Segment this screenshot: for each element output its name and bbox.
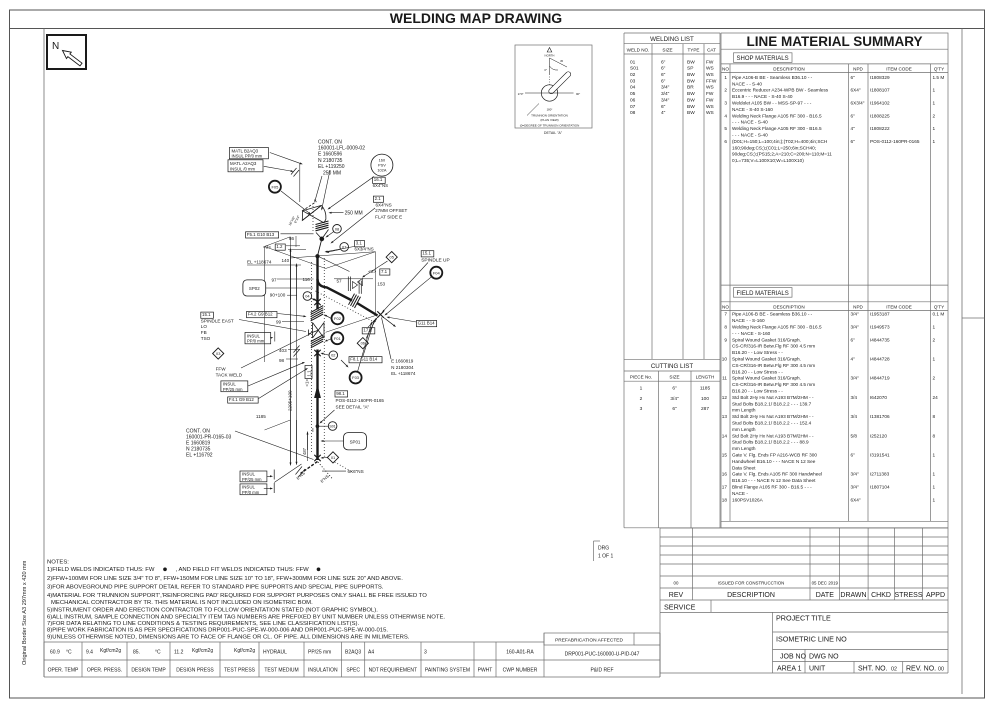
svg-text:8: 8 — [933, 433, 936, 438]
svg-text:160PSV1026A: 160PSV1026A — [732, 497, 764, 502]
svg-text:PIECE No.: PIECE No. — [630, 375, 652, 380]
svg-text:REV: REV — [669, 592, 684, 599]
svg-text:Stud Bolts B18.2.1/ B18.2.2 -: Stud Bolts B18.2.1/ B18.2.2 - - - 152.4 — [732, 421, 812, 426]
svg-text:Std Bolt 2Hy Hx Nut A193 B7M/2: Std Bolt 2Hy Hx Nut A193 B7M/2HM - - — [732, 395, 814, 400]
svg-text:1: 1 — [933, 497, 936, 502]
svg-text:11: 11 — [722, 376, 727, 381]
svg-text:100: 100 — [701, 396, 709, 402]
svg-text:TSO: TSO — [201, 336, 211, 341]
svg-text:NO: NO — [722, 304, 729, 309]
svg-text:SP01: SP01 — [350, 439, 361, 444]
svg-text:4": 4" — [661, 110, 666, 116]
svg-text:N 2180735: N 2180735 — [318, 158, 343, 164]
svg-text:, AND FIELD FIT WELDS INDICATE: , AND FIELD FIT WELDS INDICATED THUS: FF… — [176, 567, 310, 573]
svg-text:CS-CR/316-IR Betw.Flg RF 300 4: CS-CR/316-IR Betw.Flg RF 300 4.5 mm — [732, 344, 815, 349]
svg-text:97: 97 — [272, 277, 278, 282]
svg-text:3: 3 — [424, 650, 427, 656]
svg-text:1: 1 — [933, 453, 936, 458]
svg-text:APPD: APPD — [926, 592, 945, 599]
svg-text:12: 12 — [722, 395, 728, 400]
svg-text:Stud Bolts B18.2.1/ B18.2.2 -: Stud Bolts B18.2.1/ B18.2.2 - - - 88.9 — [732, 440, 809, 445]
svg-text:WELD NO.: WELD NO. — [627, 48, 650, 53]
svg-text:NACE - - S-160: NACE - - S-160 — [732, 318, 765, 323]
svg-text:I1807104: I1807104 — [870, 485, 890, 490]
svg-text:9.4: 9.4 — [86, 650, 93, 656]
svg-text:PP/25 mm: PP/25 mm — [242, 477, 262, 482]
svg-text:3/4": 3/4" — [851, 485, 860, 490]
svg-text:CAT: CAT — [707, 48, 716, 53]
svg-text:- - - NACE - S-160: - - - NACE - S-160 — [732, 331, 771, 336]
svg-text:NACE - S-40 S-160: NACE - S-40 S-160 — [732, 107, 773, 112]
svg-text:08: 08 — [335, 226, 339, 231]
svg-text:S01: S01 — [329, 425, 335, 429]
svg-text:BW: BW — [687, 110, 695, 116]
svg-text:PP/0 mm: PP/0 mm — [242, 490, 260, 495]
svg-text:SPINDLE EAST: SPINDLE EAST — [201, 318, 234, 323]
svg-text:3/4": 3/4" — [851, 325, 860, 330]
svg-text:Spiral Wound Gasket 316/Graph.: Spiral Wound Gasket 316/Graph. — [732, 357, 801, 362]
svg-text:487: 487 — [302, 447, 307, 455]
svg-text:DATE: DATE — [816, 592, 834, 599]
svg-text:270°: 270° — [518, 92, 524, 96]
svg-text:INSULATION: INSULATION — [308, 668, 338, 674]
svg-text:I1808107: I1808107 — [870, 88, 890, 93]
svg-text:Weldolet A105 BW - - MSS-SP-97: Weldolet A105 BW - - MSS-SP-97 - - - — [732, 101, 812, 106]
svg-text:N 2180304: N 2180304 — [391, 365, 414, 370]
svg-text:3.1: 3.1 — [356, 241, 363, 246]
svg-text:2: 2 — [933, 376, 936, 381]
svg-text:BW: BW — [687, 78, 695, 84]
svg-text:6": 6" — [661, 72, 666, 78]
svg-text:2: 2 — [933, 337, 936, 342]
svg-text:STRESS: STRESS — [894, 592, 922, 599]
svg-text:I642070: I642070 — [870, 395, 887, 400]
svg-text:90+100: 90+100 — [270, 292, 286, 297]
svg-text:INSUL: INSUL — [247, 333, 260, 338]
svg-text:Welding Neck Flange A105 RF 30: Welding Neck Flange A105 RF 300 - B16.5 — [732, 325, 822, 330]
svg-text:EL +118674: EL +118674 — [247, 260, 272, 265]
svg-text:I252120: I252120 — [870, 433, 887, 438]
svg-text:180°: 180° — [547, 108, 553, 112]
svg-text:102A: 102A — [377, 168, 386, 173]
svg-text:1 OF 1: 1 OF 1 — [598, 554, 614, 560]
svg-text:TEST PRESS: TEST PRESS — [224, 668, 256, 674]
svg-text:Gate V. Flg. Ends FP A216-WCB: Gate V. Flg. Ends FP A216-WCB RF 300 — [732, 453, 817, 458]
svg-text:3/4: 3/4 — [851, 395, 858, 400]
svg-text:ITEM CODE: ITEM CODE — [886, 304, 912, 309]
svg-text:DWG NO: DWG NO — [809, 654, 839, 661]
svg-text:DESCRIPTION: DESCRIPTION — [773, 304, 804, 309]
svg-text:DRG: DRG — [598, 546, 609, 552]
svg-text:F05: F05 — [271, 184, 279, 189]
svg-text:CWP NUMBER: CWP NUMBER — [503, 668, 538, 674]
svg-text:(PLAN VIEW): (PLAN VIEW) — [540, 118, 558, 122]
svg-text:POS-0112-160PR-0165: POS-0112-160PR-0165 — [336, 398, 385, 403]
svg-text:3)FOR ABOVEGROUND PIPE SUPPORT: 3)FOR ABOVEGROUND PIPE SUPPORT DETAIL RE… — [47, 585, 384, 591]
svg-text:WS: WS — [706, 72, 714, 78]
svg-text:98.1: 98.1 — [336, 391, 345, 396]
svg-text:B16.20 - - Low Stress - -: B16.20 - - Low Stress - - — [732, 369, 783, 374]
svg-text:PWHT: PWHT — [478, 668, 493, 674]
svg-text:Q'TY: Q'TY — [934, 304, 944, 309]
svg-text:0.1 M: 0.1 M — [933, 312, 945, 317]
svg-text:SP02: SP02 — [249, 286, 260, 291]
svg-text:06: 06 — [630, 97, 636, 103]
svg-text:F03: F03 — [352, 375, 360, 380]
svg-text:CONT. ON: CONT. ON — [318, 140, 342, 146]
svg-text:F01: F01 — [334, 336, 342, 341]
svg-text:08: 08 — [630, 110, 636, 116]
svg-text:60.9: 60.9 — [50, 650, 60, 656]
svg-text:1)FIELD WELDS INDICATED THUS:: 1)FIELD WELDS INDICATED THUS: FW — [47, 567, 155, 573]
svg-text:I3191541: I3191541 — [870, 453, 890, 458]
svg-text:04: 04 — [630, 85, 636, 91]
svg-text:1: 1 — [933, 126, 936, 131]
svg-text:05: 05 — [390, 255, 394, 260]
svg-text:5)INSTRUMENT ORDER AND ERECTIO: 5)INSTRUMENT ORDER AND ERECTION CONTRACT… — [47, 607, 378, 613]
svg-text:02: 02 — [331, 353, 335, 358]
svg-text:BW: BW — [687, 97, 695, 103]
svg-text:07: 07 — [630, 104, 636, 110]
svg-text:6": 6" — [851, 453, 856, 458]
svg-text:DETAIL "A": DETAIL "A" — [544, 131, 563, 135]
svg-text:6": 6" — [851, 113, 856, 118]
svg-text:A4: A4 — [368, 650, 374, 656]
svg-text:05 DEC 2019: 05 DEC 2019 — [812, 581, 839, 586]
svg-text:Kgf/cm2g: Kgf/cm2g — [100, 648, 121, 654]
svg-text:9)UNLESS OTHERWISE NOTED, DIME: 9)UNLESS OTHERWISE NOTED, DIMENSIONS ARE… — [47, 635, 410, 641]
svg-text:E 1660819: E 1660819 — [391, 358, 414, 363]
svg-text:I4844735: I4844735 — [870, 337, 890, 342]
svg-text:FW: FW — [706, 91, 714, 97]
svg-text:Kgf/cm2g: Kgf/cm2g — [234, 648, 255, 654]
svg-text:3/4": 3/4" — [851, 312, 860, 317]
svg-text:03: 03 — [216, 351, 220, 356]
svg-text:8: 8 — [724, 325, 727, 330]
svg-text:1: 1 — [724, 75, 727, 80]
svg-text:(0=DEGREE OF TRUNNION ORIENTAT: (0=DEGREE OF TRUNNION ORIENTATION — [520, 124, 580, 128]
svg-text:ISOMETRIC LINE NO: ISOMETRIC LINE NO — [776, 635, 847, 644]
svg-text:WS: WS — [706, 104, 714, 110]
svg-text:NDT REQUIREMENT: NDT REQUIREMENT — [369, 668, 418, 674]
svg-text:N: N — [52, 41, 59, 52]
svg-text:1: 1 — [640, 386, 643, 392]
svg-text:JOB NO: JOB NO — [780, 654, 807, 661]
svg-text:B2AQ3: B2AQ3 — [345, 650, 361, 656]
svg-text:MATL A2AQ3: MATL A2AQ3 — [230, 161, 257, 166]
svg-text:16: 16 — [722, 472, 728, 477]
svg-text:ITEM CODE: ITEM CODE — [886, 66, 912, 71]
svg-text:NORTH: NORTH — [545, 54, 555, 58]
svg-text:BR: BR — [687, 85, 694, 91]
svg-text:90°: 90° — [576, 92, 580, 96]
svg-text:B16.9 - - - NACE - S-40 S-40: B16.9 - - - NACE - S-40 S-40 — [732, 94, 793, 99]
svg-text:BW: BW — [687, 59, 695, 65]
svg-text:HYDRAUL: HYDRAUL — [263, 650, 287, 656]
svg-text:4: 4 — [724, 113, 727, 118]
svg-text:SPEC: SPEC — [346, 668, 360, 674]
svg-text:F8.1 G11 B14: F8.1 G11 B14 — [350, 357, 378, 362]
svg-text:153: 153 — [377, 282, 385, 287]
svg-text:7)FOR DATA RELATING TO LINE CO: 7)FOR DATA RELATING TO LINE CONDITIONS &… — [47, 621, 360, 627]
svg-text:NACE -: NACE - — [732, 491, 748, 496]
svg-text:160;90deg;CS;);(C01;L=250;6in;: 160;90deg;CS;);(C01;L=250;6in;SCH40; — [732, 145, 816, 150]
svg-text:02: 02 — [891, 667, 897, 673]
svg-text:Std Bolt 2Hy Hx Nut A193 B7M/2: Std Bolt 2Hy Hx Nut A193 B7M/2HM - - — [732, 433, 814, 438]
svg-text:3/4: 3/4 — [851, 414, 858, 419]
svg-text:<3>: <3> — [263, 244, 271, 249]
svg-text:9: 9 — [724, 337, 727, 342]
svg-text:SHT. NO.: SHT. NO. — [858, 665, 888, 672]
svg-text:6X3/4"NS: 6X3/4"NS — [355, 247, 374, 252]
svg-text:G11 B14: G11 B14 — [418, 321, 436, 326]
svg-text:45: 45 — [560, 59, 564, 63]
svg-text:160001-LFL-0009-02: 160001-LFL-0009-02 — [318, 146, 365, 152]
svg-text:SIZE: SIZE — [662, 48, 672, 53]
svg-text:1: 1 — [933, 485, 936, 490]
svg-text:18: 18 — [722, 497, 728, 502]
svg-text:mm Length: mm Length — [732, 408, 756, 413]
svg-text:Data Sheet: Data Sheet — [732, 465, 756, 470]
svg-text:14: 14 — [722, 433, 728, 438]
svg-text:5/8: 5/8 — [851, 433, 858, 438]
svg-text:3/4": 3/4" — [851, 472, 860, 477]
svg-text:4": 4" — [851, 357, 856, 362]
svg-text:I2711383: I2711383 — [870, 472, 890, 477]
svg-text:P&ID REF: P&ID REF — [590, 668, 613, 674]
svg-text:PP/25 mm: PP/25 mm — [308, 650, 331, 656]
svg-text:1.1: 1.1 — [307, 370, 312, 377]
svg-text:6X3/4": 6X3/4" — [851, 101, 865, 106]
svg-text:2205+100: 2205+100 — [287, 390, 292, 411]
svg-text:CS-CR/316-IR Betw.Flg RF 300 4: CS-CR/316-IR Betw.Flg RF 300 4.5 mm — [732, 382, 815, 387]
svg-text:MATL B2AQ3: MATL B2AQ3 — [232, 148, 259, 153]
svg-text:°C: °C — [155, 650, 161, 656]
svg-text:DESCRIPTION: DESCRIPTION — [773, 66, 804, 71]
svg-text:SHOP MATERIALS: SHOP MATERIALS — [737, 56, 789, 62]
svg-text:CUTTING LIST: CUTTING LIST — [651, 363, 694, 370]
svg-text:99: 99 — [276, 319, 282, 324]
svg-text:3/4": 3/4" — [661, 91, 670, 97]
svg-text:0°: 0° — [544, 68, 547, 72]
svg-text:2: 2 — [640, 396, 643, 402]
svg-text:6": 6" — [661, 104, 666, 110]
svg-text:86: 86 — [289, 236, 295, 241]
svg-text:I1808225: I1808225 — [870, 113, 890, 118]
svg-text:6": 6" — [661, 59, 666, 65]
svg-text:SERVICE: SERVICE — [664, 602, 696, 611]
svg-text:EL +116792: EL +116792 — [186, 452, 213, 458]
svg-text:06: 06 — [361, 341, 365, 346]
svg-text:MECHANICAL CONTRACTOR BY TR. T: MECHANICAL CONTRACTOR BY TR. THIS MATERI… — [51, 600, 313, 606]
svg-text:DESCRIPTION: DESCRIPTION — [727, 592, 775, 599]
svg-text:16.1: 16.1 — [374, 177, 383, 182]
svg-text:mm Length: mm Length — [732, 427, 756, 432]
svg-text:WELDING MAP DRAWING: WELDING MAP DRAWING — [390, 10, 563, 26]
svg-text:0;L=735;V=L100X10;W=L100X10): 0;L=735;V=L100X10;W=L100X10) — [732, 158, 804, 163]
svg-text:8: 8 — [933, 414, 936, 419]
svg-text:6: 6 — [724, 139, 727, 144]
svg-text:5: 5 — [724, 126, 727, 131]
svg-text:Handwheel B16.10 - - - NACE N: Handwheel B16.10 - - - NACE N 12 See — [732, 459, 816, 464]
svg-text:1: 1 — [933, 472, 936, 477]
svg-text:250 MM: 250 MM — [345, 210, 363, 216]
svg-text:SEE DETAIL "A": SEE DETAIL "A" — [336, 405, 370, 410]
svg-text:OPER. TEMP: OPER. TEMP — [48, 668, 79, 674]
svg-text:3/4": 3/4" — [670, 396, 679, 402]
svg-text:2: 2 — [724, 88, 727, 93]
svg-text:11.2: 11.2 — [174, 650, 184, 656]
svg-text:27MM OFFSET: 27MM OFFSET — [375, 208, 407, 213]
svg-text:2: 2 — [933, 113, 936, 118]
svg-text:NO: NO — [722, 66, 729, 71]
svg-text:6": 6" — [661, 78, 666, 84]
svg-text:6)ALL INSTRUM, SAMPLE CONNECTI: 6)ALL INSTRUM, SAMPLE CONNECTION AND SPE… — [47, 614, 445, 620]
svg-text:15.1: 15.1 — [202, 312, 211, 317]
svg-text:DRP001-PUC-160000-U-PID-047: DRP001-PUC-160000-U-PID-047 — [565, 652, 640, 658]
svg-text:UNIT: UNIT — [809, 665, 826, 672]
svg-text:116: 116 — [303, 277, 311, 282]
svg-text:REV. NO.: REV. NO. — [906, 665, 936, 672]
svg-text:15: 15 — [722, 453, 728, 458]
svg-text:SIZE: SIZE — [669, 375, 679, 380]
svg-text:TRUNNION ORIENTATION: TRUNNION ORIENTATION — [531, 114, 568, 118]
svg-text:4)MATERIAL FOR 'TRUNNION SUPPO: 4)MATERIAL FOR 'TRUNNION SUPPORT','REINF… — [47, 593, 427, 599]
svg-text:Spiral Wound Gasket 316/Graph.: Spiral Wound Gasket 316/Graph. — [732, 337, 801, 342]
svg-text:6X4"NS: 6X4"NS — [376, 202, 392, 207]
svg-text:Pipe A106-B BE - Seamless B36.: Pipe A106-B BE - Seamless B36.10 - - — [732, 75, 813, 80]
svg-text:- - - NACE - S-40: - - - NACE - S-40 — [732, 120, 768, 125]
svg-text:BW: BW — [687, 104, 695, 110]
svg-text:Welding Neck Flange A105 RF 30: Welding Neck Flange A105 RF 300 - B16.5 — [732, 126, 822, 131]
svg-text:AREA 1: AREA 1 — [777, 665, 802, 672]
svg-text:LENGTH: LENGTH — [696, 375, 715, 380]
svg-text:WS: WS — [706, 110, 714, 116]
svg-text:FW: FW — [706, 97, 714, 103]
svg-text:FW: FW — [706, 59, 714, 65]
svg-text:6": 6" — [672, 406, 677, 412]
svg-text:NACE - - S-40: NACE - - S-40 — [732, 81, 762, 86]
svg-text:I4844728: I4844728 — [870, 357, 890, 362]
svg-text:WS: WS — [706, 66, 714, 72]
svg-text:INSUL /0 mm: INSUL /0 mm — [230, 166, 255, 171]
svg-text:FFW: FFW — [706, 78, 717, 84]
svg-text:mm Length: mm Length — [732, 446, 756, 451]
svg-text:Welding Neck Flange A105 RF 30: Welding Neck Flange A105 RF 300 - B16.5 — [732, 113, 822, 118]
svg-text:F4.1 G9 B12: F4.1 G9 B12 — [229, 397, 254, 402]
svg-text:287: 287 — [701, 406, 709, 412]
svg-text:2)FFW+100MM FOR LINE SIZE 3/4": 2)FFW+100MM FOR LINE SIZE 3/4" TO 8", FF… — [47, 576, 403, 582]
svg-text:2.1: 2.1 — [375, 196, 382, 201]
svg-text:10: 10 — [722, 357, 728, 362]
svg-text:85.: 85. — [133, 650, 140, 656]
svg-text:13: 13 — [722, 414, 728, 419]
svg-text:BW: BW — [687, 72, 695, 78]
svg-text:B16.10 - - - NACE N 12 See Dat: B16.10 - - - NACE N 12 See Data Sheet — [732, 478, 816, 483]
svg-text:Blind Flange A105 RF 300 - B16: Blind Flange A105 RF 300 - B16.5 - - - — [732, 485, 812, 490]
svg-text:Kgf/cm2g: Kgf/cm2g — [192, 648, 213, 654]
svg-text:F02: F02 — [334, 316, 342, 321]
svg-text:6X4": 6X4" — [851, 88, 861, 93]
svg-text:Std Bolt 2Hy Hx Nut A193 B7M/2: Std Bolt 2Hy Hx Nut A193 B7M/2HM - - — [732, 414, 814, 419]
svg-text:1.5 M: 1.5 M — [933, 75, 945, 80]
svg-text:I1381706: I1381706 — [870, 414, 890, 419]
svg-text:F5.1 G10 B13: F5.1 G10 B13 — [247, 232, 275, 237]
svg-text:6": 6" — [851, 139, 856, 144]
svg-text:1.2: 1.2 — [276, 244, 283, 249]
svg-text:OPER. PRESS.: OPER. PRESS. — [87, 668, 122, 674]
svg-text:F4.2 G9 B12: F4.2 G9 B12 — [248, 312, 273, 317]
svg-text:1: 1 — [933, 325, 936, 330]
svg-text:250 MM: 250 MM — [323, 171, 341, 177]
svg-text:PAINTING SYSTEM: PAINTING SYSTEM — [425, 668, 470, 674]
svg-text:Gate V. Flg. Ends A105 RF 300: Gate V. Flg. Ends A105 RF 300 Handwheel — [732, 472, 822, 477]
svg-text:02: 02 — [630, 72, 636, 78]
svg-text:3/4": 3/4" — [661, 97, 670, 103]
svg-text:160-A01-RA: 160-A01-RA — [506, 650, 534, 656]
svg-text:7.1: 7.1 — [381, 269, 388, 274]
svg-text:01: 01 — [630, 59, 636, 65]
svg-text:Pipe A106-B BE - Seamless B36.: Pipe A106-B BE - Seamless B36.10 - - — [732, 312, 813, 317]
svg-text:FLAT SIDE E: FLAT SIDE E — [375, 214, 402, 219]
svg-text:01: 01 — [331, 455, 335, 460]
svg-text:3: 3 — [724, 101, 727, 106]
svg-text:57: 57 — [337, 279, 343, 284]
svg-text:SP: SP — [687, 66, 693, 72]
svg-text:6": 6" — [851, 75, 856, 80]
svg-text:1: 1 — [933, 88, 936, 93]
svg-text:00: 00 — [674, 581, 679, 586]
svg-text:CS-CR/316-IR Betw.Flg RF 300 4: CS-CR/316-IR Betw.Flg RF 300 4.5 mm — [732, 363, 815, 368]
svg-text:<2>: <2> — [368, 269, 376, 274]
svg-text:PREFABRICATION AFFECTED: PREFABRICATION AFFECTED — [555, 637, 623, 643]
svg-text:I1808222: I1808222 — [870, 126, 890, 131]
svg-text:15.1: 15.1 — [422, 251, 431, 256]
svg-text:I1953187: I1953187 — [870, 312, 890, 317]
svg-text:DRAWN: DRAWN — [840, 592, 866, 599]
svg-text:DESIGN PRESS: DESIGN PRESS — [176, 668, 214, 674]
svg-text:00: 00 — [938, 667, 944, 673]
svg-text:6X6"NS: 6X6"NS — [348, 469, 364, 474]
svg-text:NPD: NPD — [853, 66, 863, 71]
svg-text:WS: WS — [706, 85, 714, 91]
svg-text:3: 3 — [640, 406, 643, 412]
svg-text:FFW: FFW — [216, 366, 227, 371]
svg-text:6": 6" — [661, 66, 666, 72]
svg-text:(D01;H=150;L=100;4in;);(T02;H=: (D01;H=150;L=100;4in;);(T02;H=400;4in;SC… — [732, 139, 827, 144]
svg-text:Eccentric Reducer A234-WPB BW: Eccentric Reducer A234-WPB BW - Seamless — [732, 88, 829, 93]
svg-text:1185: 1185 — [256, 414, 266, 419]
svg-text:140: 140 — [282, 258, 290, 263]
svg-text:7: 7 — [724, 312, 727, 317]
svg-text:SPINDLE UP: SPINDLE UP — [421, 257, 450, 263]
svg-text:WELDING LIST: WELDING LIST — [650, 36, 694, 43]
svg-text:TEST MEDIUM: TEST MEDIUM — [264, 668, 298, 674]
svg-text:PP/25 mm: PP/25 mm — [223, 387, 243, 392]
svg-text:05: 05 — [630, 91, 636, 97]
svg-text:BW: BW — [687, 91, 695, 97]
svg-text:Original Border Size A3 297mm: Original Border Size A3 297mm x 420 mm — [22, 560, 28, 665]
svg-text:90deg;CS;);(PS15;2;A=210;C=200: 90deg;CS;);(PS15;2;A=210;C=200;N=110;M=1… — [732, 152, 832, 157]
svg-text:1: 1 — [933, 357, 936, 362]
svg-text:1: 1 — [933, 139, 936, 144]
svg-text:EL +119250: EL +119250 — [318, 164, 345, 170]
svg-text:CHKD: CHKD — [871, 592, 891, 599]
svg-text:LINE MATERIAL SUMMARY: LINE MATERIAL SUMMARY — [747, 34, 923, 49]
svg-text:S01: S01 — [630, 66, 639, 72]
svg-text:EL +118674: EL +118674 — [391, 371, 416, 376]
svg-text:B16.20 - - Low Stress - -: B16.20 - - Low Stress - - — [732, 389, 783, 394]
